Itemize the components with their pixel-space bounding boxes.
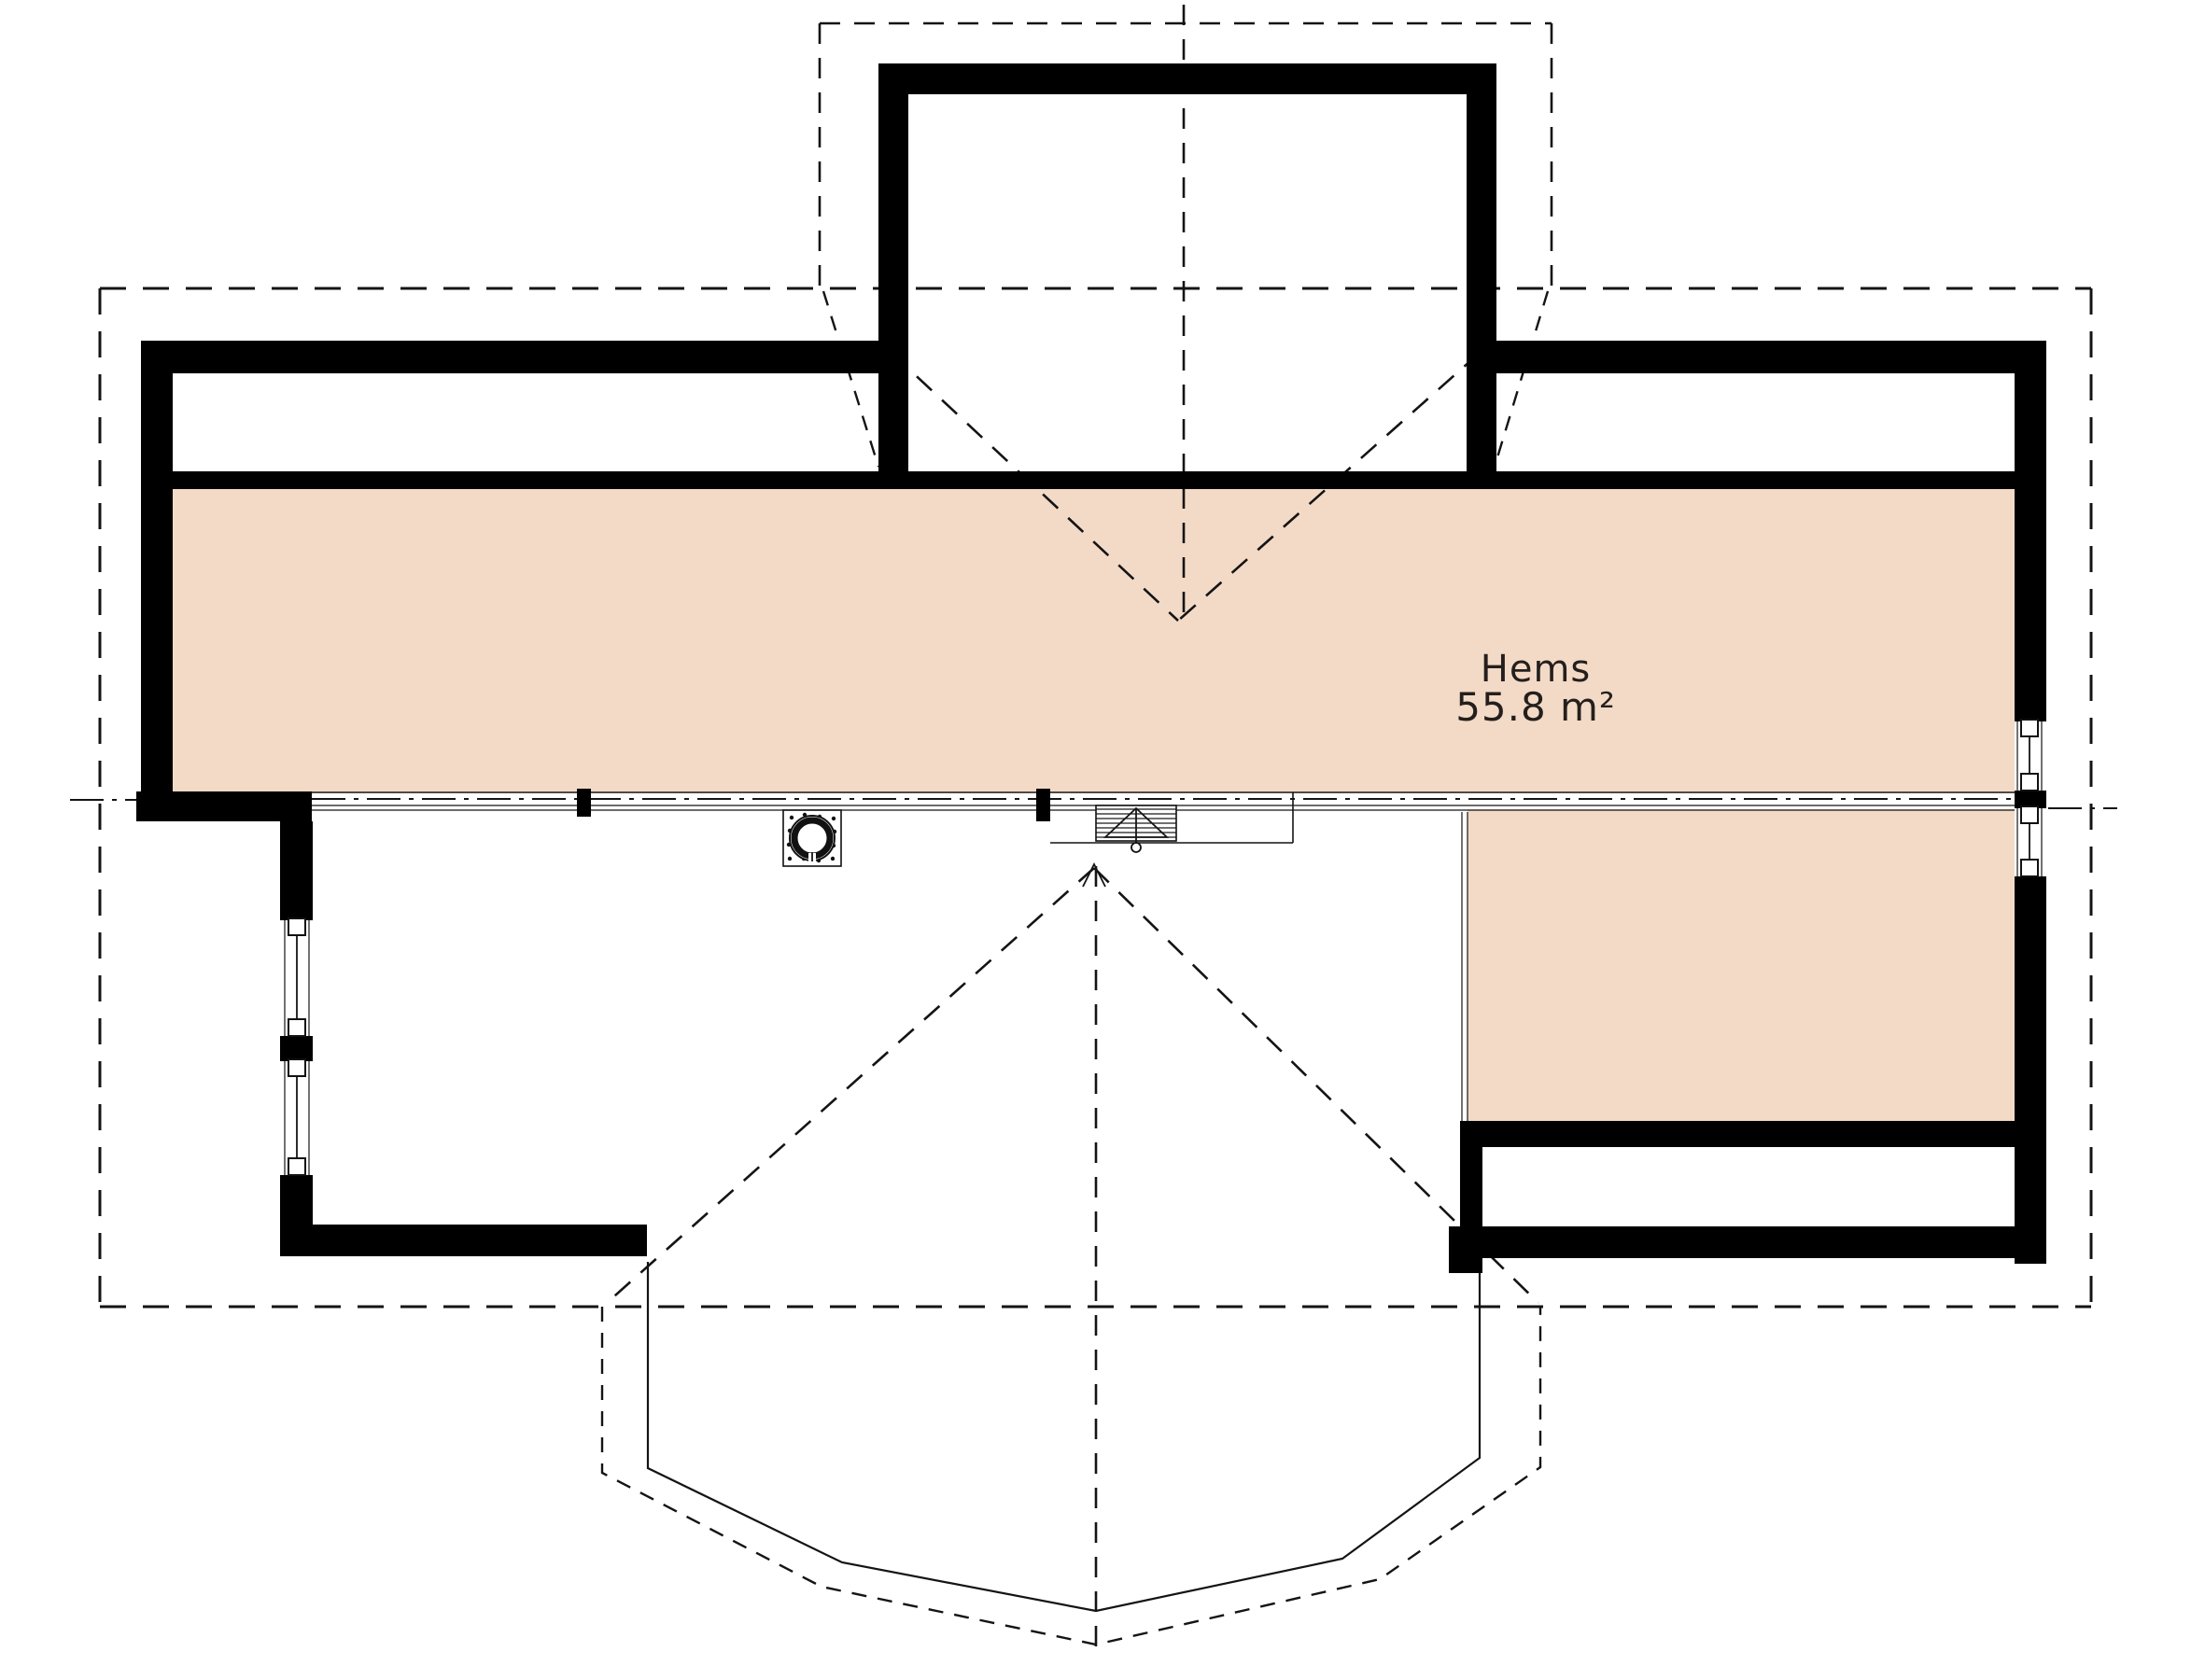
dormer-wall-left (878, 63, 908, 471)
railing-post (577, 789, 591, 817)
wall-left (141, 341, 173, 821)
window-icon (2017, 720, 2042, 791)
dormer-hip-left (823, 291, 878, 467)
bay-window-outline (602, 1262, 1540, 1645)
wall-top-right (1496, 341, 2046, 373)
wall-right-lower (2015, 876, 2046, 1264)
wall-lower-right-top (1468, 1121, 2046, 1147)
bay-window-roof-dashed (602, 1307, 1540, 1645)
wall-lower-left-b (280, 1036, 313, 1061)
roof-hip-left (607, 868, 1094, 1303)
loft-floor-lower-right (1468, 809, 2015, 1121)
loft-floor-upper (173, 489, 2015, 792)
dormer-wall-right (1467, 63, 1496, 471)
bay-window-wall-line (648, 1262, 1480, 1611)
wall-lower-left-a (280, 821, 313, 920)
floor-plan-canvas: Hems 55.8 m² (0, 0, 2191, 1680)
chimney-icon (783, 810, 841, 866)
railing-post (1036, 789, 1050, 821)
wall-step-left (136, 791, 312, 821)
attic-ladder-icon (1096, 805, 1176, 852)
room-area-label: 55.8 m² (1455, 684, 1616, 730)
wall-top-left (141, 341, 878, 373)
dormer-wall-top (878, 63, 1496, 94)
wall-right-upper (2015, 341, 2046, 721)
window-icon (285, 918, 309, 1036)
dormer-hip-right (1495, 291, 1548, 467)
wall-bottom-right (1460, 1226, 2046, 1258)
knee-wall (173, 471, 2015, 489)
wall-bottom-left (280, 1225, 647, 1256)
window-icon (2017, 806, 2042, 876)
window-icon (285, 1059, 309, 1175)
